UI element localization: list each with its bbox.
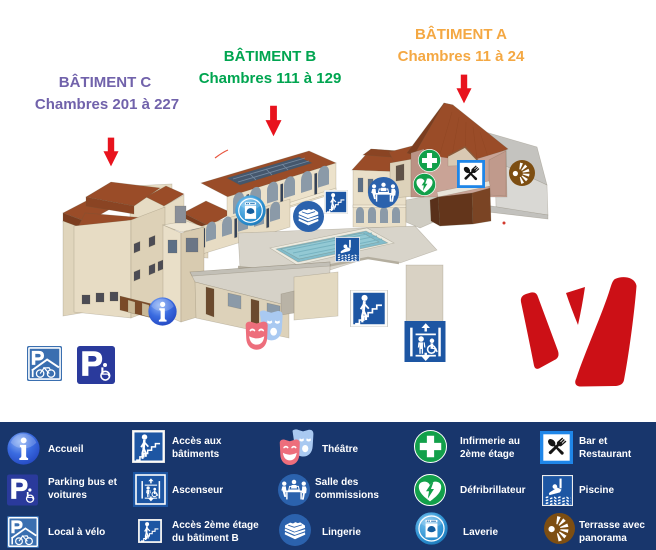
- svg-text:Laverie: Laverie: [463, 527, 498, 538]
- svg-text:Théâtre: Théâtre: [322, 444, 359, 455]
- svg-text:Accueil: Accueil: [48, 444, 84, 455]
- svg-text:Chambres 11 à 24: Chambres 11 à 24: [398, 48, 525, 65]
- svg-text:Piscine: Piscine: [579, 485, 614, 496]
- svg-text:Chambres 201 à 227: Chambres 201 à 227: [35, 96, 179, 113]
- svg-text:Accès aux: Accès aux: [172, 436, 222, 447]
- svg-text:Défribrillateur: Défribrillateur: [460, 485, 526, 496]
- svg-text:BÂTIMENT B: BÂTIMENT B: [224, 47, 317, 65]
- svg-text:Restaurant: Restaurant: [579, 449, 632, 460]
- svg-text:Salle des: Salle des: [315, 477, 359, 488]
- svg-text:voitures: voitures: [48, 490, 87, 501]
- svg-text:bâtiments: bâtiments: [172, 449, 220, 460]
- svg-text:Bar et: Bar et: [579, 436, 608, 447]
- svg-text:BÂTIMENT A: BÂTIMENT A: [415, 25, 507, 43]
- svg-text:panorama: panorama: [579, 533, 627, 544]
- svg-text:Terrasse avec: Terrasse avec: [579, 520, 645, 531]
- svg-text:du bâtiment B: du bâtiment B: [172, 533, 239, 544]
- svg-text:Lingerie: Lingerie: [322, 527, 361, 538]
- svg-text:BÂTIMENT C: BÂTIMENT C: [59, 73, 152, 91]
- svg-text:commissions: commissions: [315, 490, 379, 501]
- svg-text:Accès 2ème étage: Accès 2ème étage: [172, 520, 259, 531]
- svg-text:Ascenseur: Ascenseur: [172, 485, 223, 496]
- svg-text:Infirmerie au: Infirmerie au: [460, 436, 520, 447]
- svg-text:Chambres 111 à 129: Chambres 111 à 129: [199, 70, 342, 87]
- svg-text:Parking bus et: Parking bus et: [48, 477, 118, 488]
- svg-text:Local à vélo: Local à vélo: [48, 527, 105, 538]
- svg-text:2ème étage: 2ème étage: [460, 449, 515, 460]
